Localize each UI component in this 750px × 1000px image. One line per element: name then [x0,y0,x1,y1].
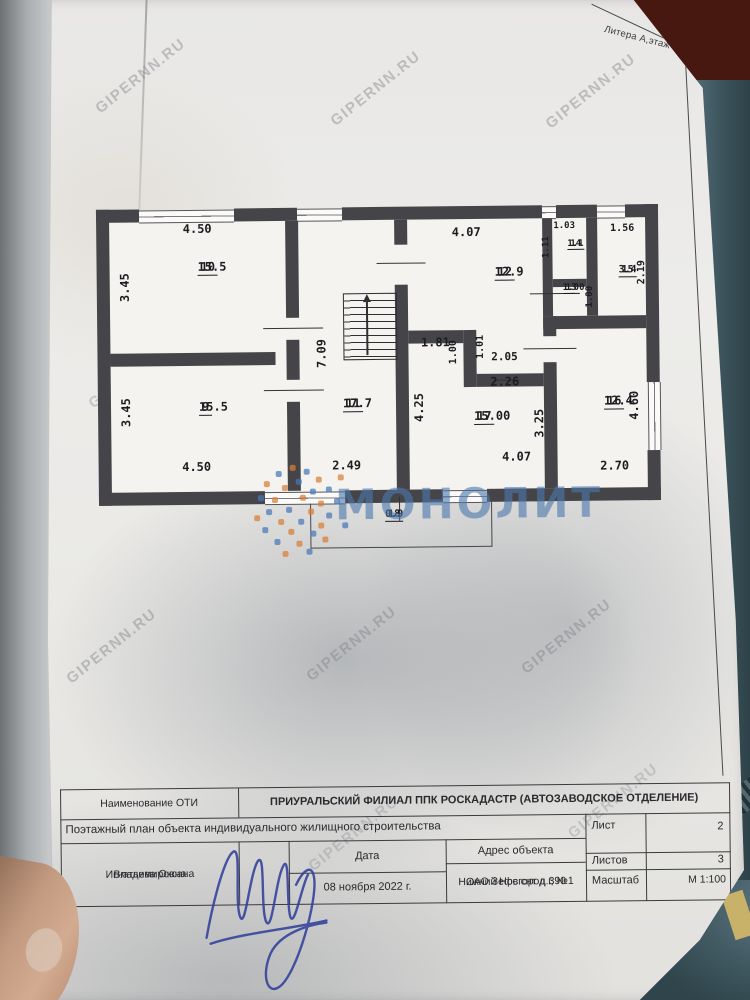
scale-label: Масштаб [592,869,644,892]
dimension-label: 1.81 [421,335,450,349]
window [297,208,342,221]
room-area: 12.9 [495,265,524,279]
scale-value: М 1:100 [646,868,726,891]
dimension-label: 2.49 [332,458,361,472]
monolit-watermark: МОНОЛИТ [335,478,604,530]
address-line2: ОАО Зефс снт д.390 [466,875,566,888]
sheet-label: Лист [591,813,641,838]
dimension-label: 7.09 [314,339,328,368]
wall [110,352,275,367]
outer-wall-right [647,450,661,500]
dimension-label: 2.26 [490,374,519,388]
document-page: Литера А,этаж 2 GIPERNN.RUGIPERNN.RUGIPE… [0,0,750,1000]
gipernn-watermark: GIPERNN.RU [63,605,160,687]
dimension-label: 3.25 [532,409,546,438]
gipernn-watermark: GIPERNN.RU [542,50,639,132]
dimension-label: 3.45 [118,273,132,302]
door-opening [393,245,408,285]
room-area: 1.1 [567,239,583,250]
outer-wall-top [556,205,597,218]
dimension-label: 4.25 [412,393,426,422]
staircase [343,293,398,361]
window [597,205,625,218]
title-block: Наименование ОТИ ПРИУРАЛЬСКИЙ ФИЛИАЛ ППК… [60,782,731,907]
room-area: 15.00 [474,410,510,424]
watermark-layer: GIPERNN.RUGIPERNN.RUGIPERNN.RUGIPERNN.RU… [0,0,745,4]
dimension-label: 1.03 [553,221,575,231]
photo-of-floorplan-document: Литера А,этаж 2 GIPERNN.RUGIPERNN.RUGIPE… [0,0,750,1000]
outer-wall-top [234,208,297,222]
dimension-label: 1.56 [610,223,634,234]
address-value: Нижний Новгород г, №1 ОАО Зефс снт д.390 [446,862,586,902]
gipernn-watermark: GIPERNN.RU [327,47,424,129]
outer-wall-right [645,204,660,382]
monolit-logo-dots [252,463,258,469]
oti-label: Наименование ОТИ [60,787,238,819]
address-label: Адрес объекта [446,838,586,863]
gipernn-watermark: GIPERNN.RU [92,35,189,117]
dimension-label: 4.50 [183,222,212,236]
room-area: 15.5 [197,261,226,275]
room-area: 3.4 [619,264,637,276]
room-area: 1.00 [563,283,585,294]
room-area: 15.5 [199,401,228,415]
dimension-label: 1.00 [585,286,595,308]
dimension-label: 2.19 [636,260,647,284]
dimension-label: 1.01 [475,335,486,359]
room-area: 17.7 [343,397,372,411]
dimension-label: 4.07 [502,449,531,463]
dimension-label: 3.45 [119,398,133,427]
sheets-label: Листов [592,852,642,870]
wall [542,218,553,316]
gipernn-watermark: GIPERNN.RU [303,603,400,685]
signature [199,824,331,1000]
window [648,382,662,450]
wall [543,315,646,329]
outer-wall-bottom [99,491,265,506]
dimension-label: 2.70 [600,458,629,472]
dimension-label: 4.60 [627,391,641,420]
dimension-label: 4.07 [452,225,481,239]
sheets-value: 3 [646,851,724,869]
dimension-label: 2.05 [491,350,518,363]
gipernn-watermark: GIPERNN.RU [518,595,615,677]
sheet-value: 2 [645,812,723,841]
dimension-label: 1.00 [448,340,459,364]
dimension-label: 1.11 [541,236,551,258]
executor-line2: Владимировна [113,868,186,881]
dimension-label: 4.50 [182,460,211,474]
outer-wall-top [342,205,542,220]
